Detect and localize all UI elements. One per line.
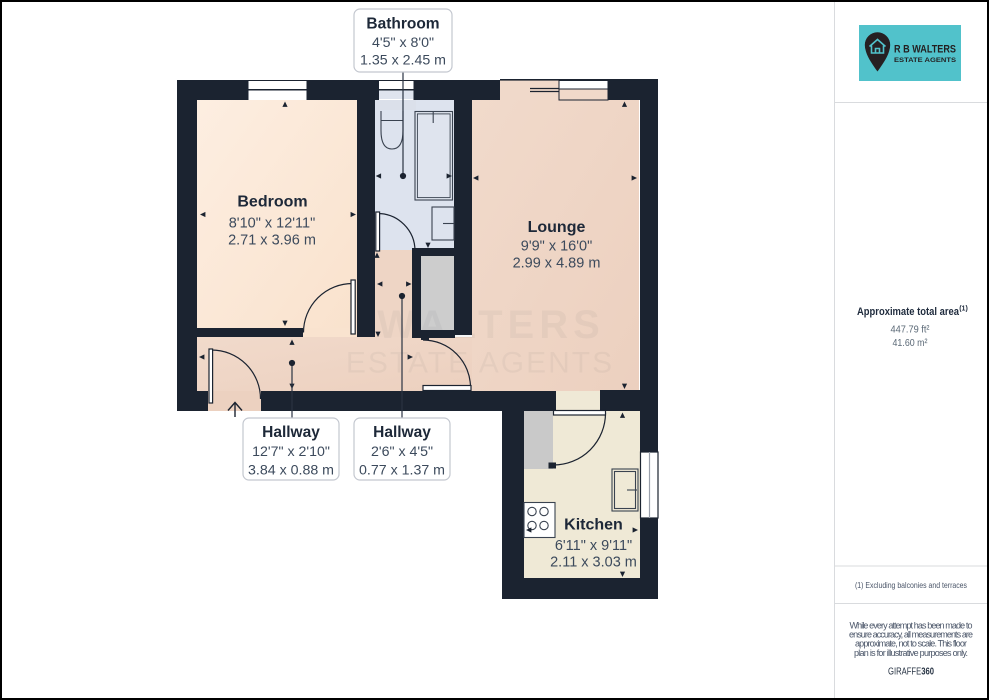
svg-text:plan is for illustrative purpo: plan is for illustrative purposes only. xyxy=(854,648,968,658)
svg-text:9'9" x 16'0": 9'9" x 16'0" xyxy=(521,239,592,255)
svg-text:R B WALTERS: R B WALTERS xyxy=(894,44,956,56)
svg-text:(1): (1) xyxy=(959,306,968,313)
svg-text:GIRAFFE360: GIRAFFE360 xyxy=(888,667,934,678)
svg-text:Hallway: Hallway xyxy=(373,424,431,441)
svg-text:Lounge: Lounge xyxy=(528,219,586,236)
svg-text:6'11" x 9'11": 6'11" x 9'11" xyxy=(555,538,632,554)
svg-text:Kitchen: Kitchen xyxy=(564,517,623,534)
svg-text:WALTERS: WALTERS xyxy=(377,303,605,347)
svg-text:(1) Excluding balconies and te: (1) Excluding balconies and terraces xyxy=(855,580,968,590)
svg-text:2.71 x 3.96 m: 2.71 x 3.96 m xyxy=(228,232,316,248)
svg-text:Approximate total area: Approximate total area xyxy=(857,306,960,318)
svg-text:2.99 x 4.89 m: 2.99 x 4.89 m xyxy=(513,255,601,271)
svg-text:12'7" x 2'10": 12'7" x 2'10" xyxy=(252,444,330,460)
svg-text:8'10" x 12'11": 8'10" x 12'11" xyxy=(229,215,316,231)
svg-text:2'6" x 4'5": 2'6" x 4'5" xyxy=(371,444,433,460)
svg-text:1.35 x 2.45 m: 1.35 x 2.45 m xyxy=(360,53,446,69)
svg-text:Bedroom: Bedroom xyxy=(237,194,307,211)
svg-text:2.11 x 3.03 m: 2.11 x 3.03 m xyxy=(550,554,637,570)
svg-text:3.84 x 0.88 m: 3.84 x 0.88 m xyxy=(248,462,334,478)
svg-text:41.60 m²: 41.60 m² xyxy=(893,338,929,349)
svg-text:ESTATE AGENTS: ESTATE AGENTS xyxy=(894,57,957,64)
svg-text:447.79 ft²: 447.79 ft² xyxy=(891,325,931,336)
svg-text:ESTATE AGENTS: ESTATE AGENTS xyxy=(346,347,614,380)
svg-text:Bathroom: Bathroom xyxy=(366,16,439,33)
svg-text:4'5" x 8'0": 4'5" x 8'0" xyxy=(372,35,434,51)
svg-text:0.77 x 1.37 m: 0.77 x 1.37 m xyxy=(359,462,445,478)
svg-text:Hallway: Hallway xyxy=(262,424,320,441)
